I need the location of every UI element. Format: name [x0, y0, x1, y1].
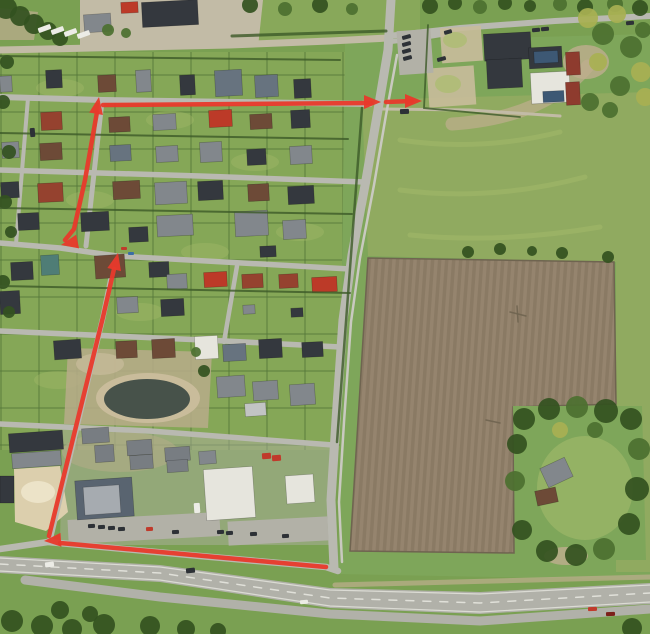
tree [538, 398, 560, 420]
tree [278, 2, 292, 16]
vehicle [250, 532, 257, 536]
pond-water [104, 379, 190, 419]
building-roof [121, 2, 139, 14]
tree [618, 513, 640, 535]
building-roof [486, 58, 522, 89]
building-roof [565, 52, 580, 76]
building-roof [38, 182, 64, 202]
vehicle [118, 527, 125, 531]
building-roof [543, 90, 565, 102]
tree [589, 53, 607, 71]
building-roof [252, 380, 278, 401]
tree [578, 8, 598, 28]
building-roof [294, 79, 312, 99]
building-roof [250, 113, 273, 129]
tree [620, 408, 642, 430]
building-roof [135, 70, 151, 93]
building-roof [40, 255, 59, 276]
building-roof [11, 261, 34, 280]
sand-pit-light [21, 481, 55, 503]
tree [1, 610, 23, 632]
vehicle [606, 612, 615, 616]
building-roof [110, 144, 132, 161]
building-roof [156, 145, 179, 162]
tree [632, 0, 648, 16]
tree [620, 36, 642, 58]
building-roof [565, 82, 580, 106]
building-roof [53, 339, 81, 360]
tree [566, 396, 588, 418]
tree [628, 438, 650, 460]
tree [610, 76, 630, 96]
building-roof [260, 246, 277, 258]
building-roof [167, 273, 188, 289]
building-roof [290, 145, 313, 164]
building-roof [0, 476, 14, 503]
building-roof [247, 149, 267, 166]
vehicle [588, 607, 597, 611]
building-roof [127, 439, 153, 456]
tree [592, 23, 614, 45]
building-roof [130, 454, 154, 470]
building-roof [302, 341, 324, 357]
tree [581, 93, 599, 111]
vehicle [108, 526, 115, 530]
building-roof [279, 274, 299, 289]
building-roof [94, 444, 114, 462]
playground-grass-2 [435, 75, 461, 93]
building-roof [283, 219, 307, 239]
vehicle [400, 109, 409, 114]
tree [191, 347, 201, 357]
vehicle [541, 27, 549, 32]
building-roof [243, 305, 255, 315]
building-roof [113, 180, 141, 199]
vehicle [226, 531, 233, 535]
tree [527, 246, 537, 256]
building-roof [214, 69, 242, 96]
building-roof [152, 338, 176, 358]
building-roof [82, 427, 110, 444]
tree [594, 399, 618, 423]
tree [3, 306, 15, 318]
building-roof [0, 76, 12, 93]
building-roof [483, 32, 531, 61]
vehicle [98, 525, 105, 529]
building-roof [154, 181, 187, 205]
building-roof [12, 450, 62, 468]
vehicle [172, 530, 179, 534]
tree [512, 520, 532, 540]
building-roof [98, 75, 117, 93]
building-roof [8, 430, 63, 453]
vehicle [146, 527, 153, 531]
tree [565, 544, 587, 566]
tree [602, 102, 618, 118]
building-roof [41, 111, 63, 130]
tree [473, 0, 487, 14]
tree [462, 246, 474, 258]
building-roof [245, 402, 267, 416]
building-roof [289, 383, 315, 406]
vehicle [45, 562, 54, 568]
tree [505, 471, 525, 491]
tree [198, 365, 210, 377]
tree [552, 422, 568, 438]
vehicle [30, 128, 36, 137]
building-roof [204, 271, 228, 287]
building-roof [534, 50, 559, 63]
vehicle [121, 247, 127, 250]
building-roof [242, 273, 264, 288]
vehicle [128, 252, 134, 255]
building-roof [223, 343, 247, 361]
vehicle [217, 530, 224, 534]
vehicle [262, 453, 271, 460]
building-roof [156, 214, 193, 237]
vehicle [300, 600, 308, 605]
building-roof [312, 276, 338, 292]
tree [494, 243, 506, 255]
tree [524, 0, 536, 12]
route-top-street-eastbound [103, 103, 371, 105]
building-roof [254, 74, 278, 97]
tree [5, 226, 17, 238]
building-roof [291, 308, 303, 318]
building-roof [203, 466, 255, 520]
tree [121, 28, 131, 38]
building-roof [83, 485, 121, 515]
building-roof [198, 180, 224, 200]
aerial-photo-canvas [0, 0, 650, 634]
tree [602, 251, 614, 263]
tree [82, 606, 98, 622]
tree [513, 408, 535, 430]
vehicle [272, 455, 281, 462]
vehicle [626, 21, 634, 26]
tree [536, 540, 558, 562]
tree [593, 538, 615, 560]
building-roof [116, 340, 138, 358]
tree [51, 601, 69, 619]
tree [346, 3, 358, 15]
building-roof [46, 70, 63, 89]
building-roof [199, 450, 217, 464]
tree [2, 145, 16, 159]
building-roof [40, 142, 63, 160]
tree [587, 422, 603, 438]
building-roof [234, 210, 268, 237]
building-roof [199, 141, 222, 162]
building-roof [209, 109, 233, 127]
building-roof [259, 338, 283, 358]
building-roof [285, 474, 315, 504]
building-roof [129, 227, 149, 243]
building-roof [291, 110, 311, 129]
aerial-map-view[interactable] [0, 0, 650, 634]
building-roof [167, 459, 189, 472]
building-roof [153, 113, 177, 130]
tree [507, 434, 527, 454]
building-roof [81, 211, 110, 231]
building-roof [288, 185, 315, 204]
building-roof [18, 212, 40, 230]
vehicle [186, 568, 195, 574]
vehicle [532, 28, 540, 33]
tree [556, 247, 568, 259]
building-roof [141, 0, 198, 27]
building-roof [149, 261, 170, 277]
building-roof [248, 183, 270, 201]
building-roof [109, 116, 131, 132]
vehicle [194, 503, 201, 513]
vehicle [282, 534, 289, 538]
building-roof [117, 296, 139, 313]
west-yard-scruff [62, 432, 178, 472]
field-mark-1b [517, 306, 518, 322]
tree [625, 477, 649, 501]
tree [608, 5, 626, 23]
vehicle [88, 524, 95, 528]
building-roof [216, 375, 245, 398]
building-roof [179, 75, 195, 96]
tree [102, 24, 114, 36]
building-roof [161, 298, 185, 316]
